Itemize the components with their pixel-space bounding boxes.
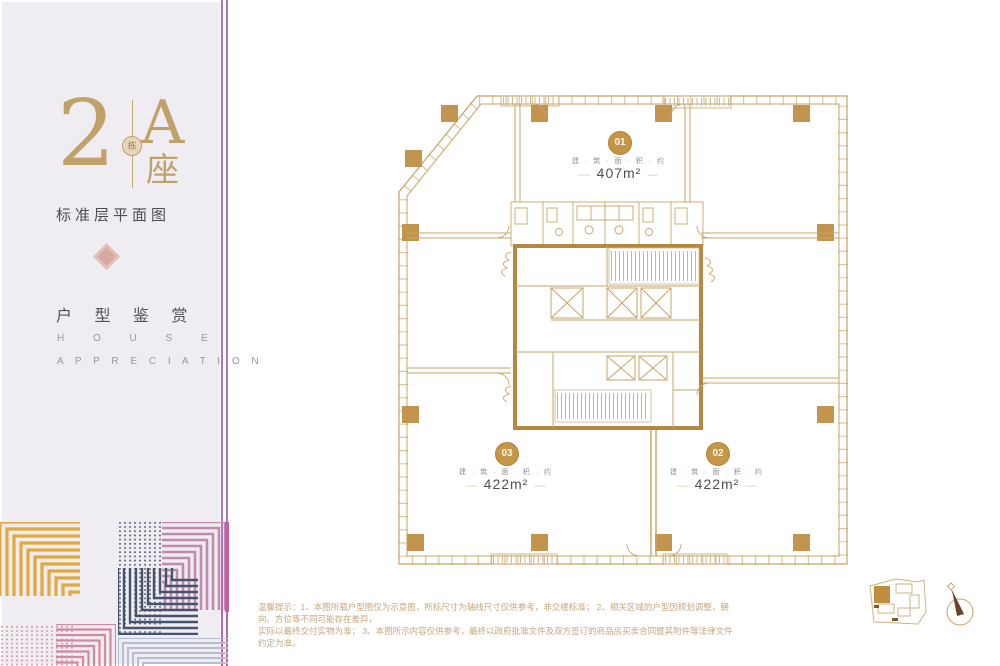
deco-stripes-gold	[0, 522, 80, 597]
disclaimer-text: 温馨提示：1、本图所载户型图仅为示意图，所标尺寸为轴线尺寸仅供参考，非交楼标准；…	[258, 601, 738, 649]
section-title-cn: 户 型 鉴 赏	[56, 302, 196, 326]
disclaimer-line-1: 温馨提示：1、本图所载户型图仅为示意图，所标尺寸为轴线尺寸仅供参考，非交楼标准；…	[258, 601, 738, 625]
building-number: 2	[57, 86, 116, 182]
unit-02-badge: 02	[706, 442, 730, 466]
building-badge: 栋	[122, 136, 142, 156]
floorplan-subtitle: 标准层平面图	[56, 204, 170, 225]
unit-02-area-value: —422m²—	[642, 476, 792, 492]
poster-page: 2 栋 A 座 标准层平面图 户 型 鉴 赏 H O U S E A P P R…	[0, 0, 1000, 666]
site-keyplan	[862, 574, 982, 634]
keyplan-highlight-building	[874, 586, 890, 603]
dash: —	[579, 169, 591, 181]
compass-icon	[947, 583, 973, 625]
deco-stripes-pink	[0, 624, 116, 666]
unit-03-area-value: —422m²—	[431, 476, 581, 492]
unit-03-badge: 03	[495, 442, 519, 466]
block-letter: A	[141, 92, 184, 154]
disclaimer-line-2: 实际以最终交付实物为准； 3、本图所示内容仅供参考，最终以政府批准文件及双方签订…	[258, 625, 738, 649]
block-char: 座	[146, 152, 179, 188]
section-title-en-1: H O U S E	[57, 333, 221, 344]
deco-stripes-purple	[118, 522, 230, 635]
unit-01-badge: 01	[608, 131, 632, 155]
section-title-en-2: A P P R E C I A T I O N	[57, 356, 263, 367]
deco-stripes-lavender	[118, 638, 228, 666]
unit-01-area-value: —407m²—	[544, 165, 694, 181]
